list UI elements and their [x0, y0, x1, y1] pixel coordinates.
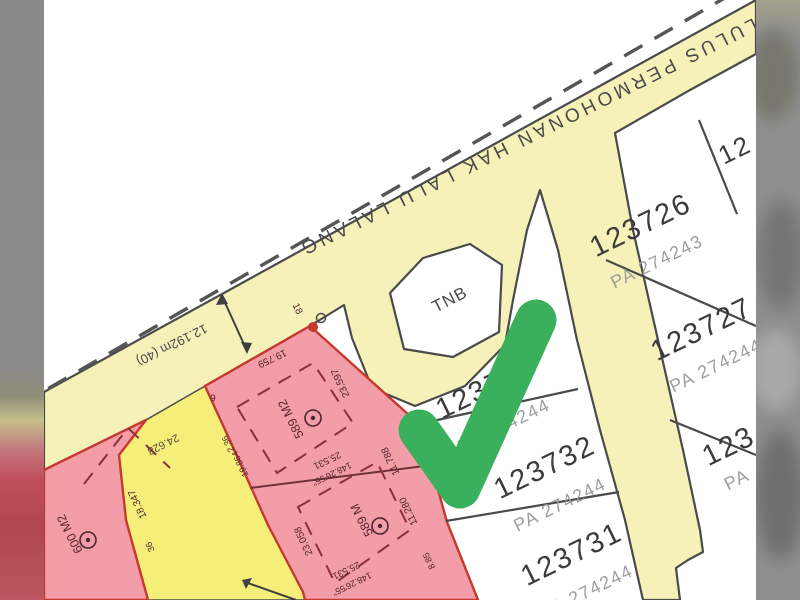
right-blur-edge: [756, 0, 800, 600]
map-canvas: LULUS PERMOHONAN HAK LALU LALANG 12.192m…: [0, 0, 800, 600]
left-blur-edge: [0, 0, 44, 600]
green-checkmark-icon: [0, 0, 800, 600]
